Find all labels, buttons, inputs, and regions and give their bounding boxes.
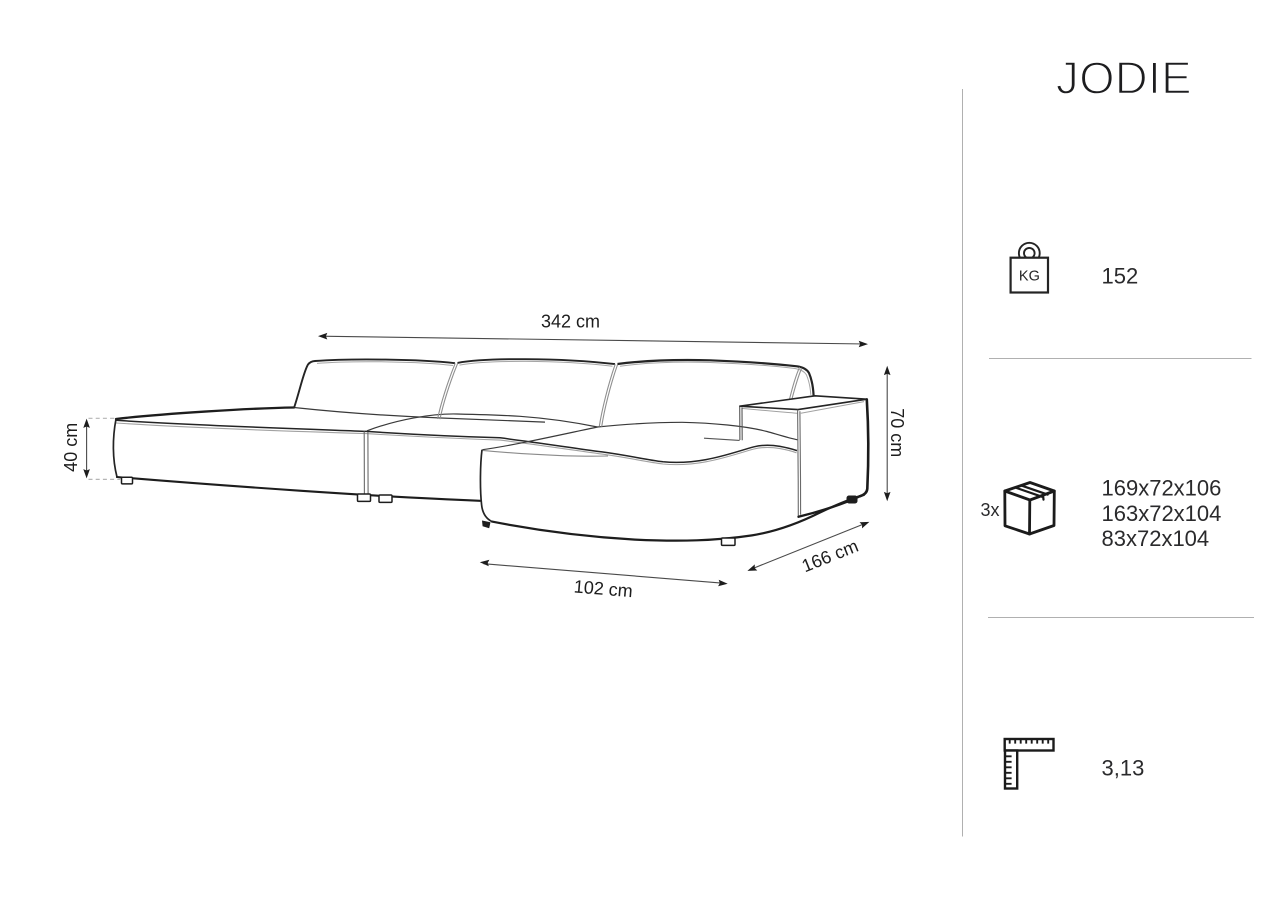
svg-text:152: 152 [1102, 264, 1139, 289]
svg-text:3x: 3x [981, 500, 1000, 520]
svg-text:169x72x106: 169x72x106 [1102, 475, 1222, 500]
svg-text:166 cm: 166 cm [799, 536, 861, 577]
svg-text:342 cm: 342 cm [541, 312, 600, 332]
svg-text:102 cm: 102 cm [573, 576, 633, 601]
svg-text:40 cm: 40 cm [61, 423, 81, 472]
svg-text:83x72x104: 83x72x104 [1102, 526, 1210, 551]
svg-text:KG: KG [1019, 269, 1040, 285]
svg-text:163x72x104: 163x72x104 [1102, 501, 1222, 526]
svg-text:70 cm: 70 cm [887, 408, 907, 457]
svg-text:3,13: 3,13 [1102, 756, 1145, 781]
svg-text:JODIE: JODIE [1056, 53, 1192, 104]
